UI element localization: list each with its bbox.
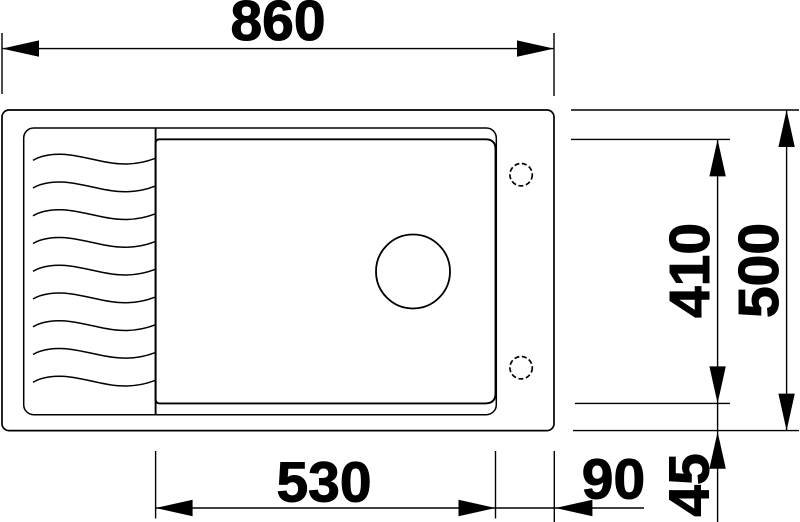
svg-text:410: 410 [658, 223, 722, 318]
svg-text:90: 90 [582, 448, 645, 512]
svg-text:500: 500 [727, 223, 791, 318]
svg-text:45: 45 [658, 453, 722, 516]
svg-text:530: 530 [276, 451, 371, 515]
svg-text:860: 860 [230, 0, 325, 53]
